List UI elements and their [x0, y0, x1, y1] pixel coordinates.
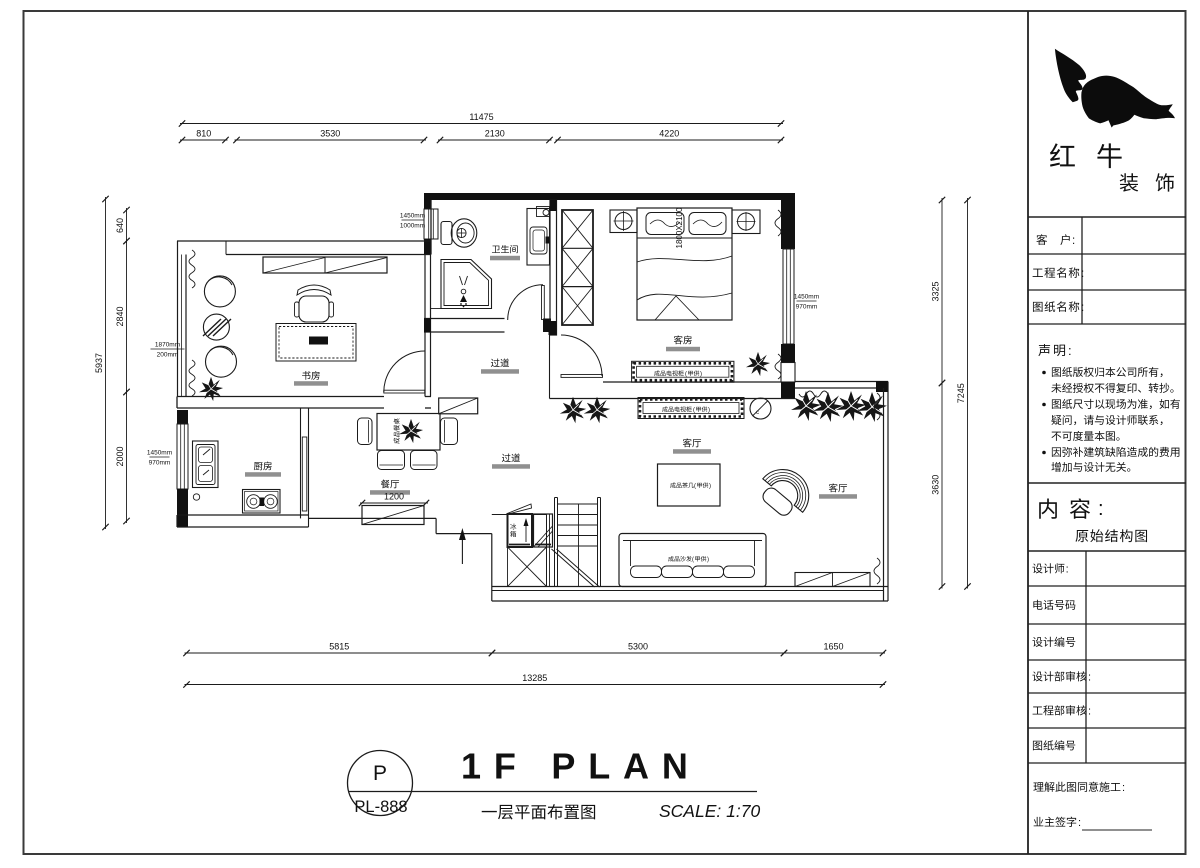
svg-text:(: (	[694, 484, 696, 490]
svg-text::: :	[1068, 343, 1072, 358]
svg-text:1F PLAN: 1F PLAN	[461, 746, 701, 787]
svg-text:640: 640	[115, 218, 125, 233]
svg-text:c: c	[756, 410, 759, 416]
svg-text:13285: 13285	[522, 673, 547, 683]
svg-text:): )	[709, 484, 711, 490]
svg-text:1450mm: 1450mm	[147, 450, 172, 457]
svg-text:3530: 3530	[320, 129, 340, 139]
svg-text:3630: 3630	[931, 475, 941, 495]
svg-text:4220: 4220	[659, 129, 679, 139]
svg-text::: :	[1088, 672, 1091, 684]
svg-text:970mm: 970mm	[796, 304, 818, 311]
svg-text::: :	[1098, 498, 1104, 520]
svg-text::: :	[1088, 706, 1091, 718]
svg-text:1000mm: 1000mm	[400, 223, 425, 230]
svg-text:PL-888: PL-888	[354, 798, 407, 816]
svg-text:2000: 2000	[115, 446, 125, 466]
svg-text:1800X2100: 1800X2100	[675, 207, 684, 248]
svg-text:11475: 11475	[469, 112, 493, 122]
svg-text::: :	[1072, 235, 1075, 247]
svg-text:(: (	[692, 557, 694, 563]
svg-text:(: (	[693, 408, 695, 414]
svg-text:): )	[707, 557, 709, 563]
svg-text:3325: 3325	[931, 281, 941, 301]
svg-text:200mm: 200mm	[157, 352, 179, 359]
svg-text:5937: 5937	[94, 353, 104, 373]
svg-text:7245: 7245	[956, 383, 966, 403]
svg-text:(: (	[685, 372, 687, 378]
svg-text::: :	[1081, 302, 1084, 314]
svg-text:970mm: 970mm	[149, 460, 171, 467]
svg-text:P: P	[373, 762, 387, 785]
svg-text:1450mm: 1450mm	[794, 294, 819, 301]
svg-text:SCALE: 1:70: SCALE: 1:70	[659, 801, 760, 821]
svg-text::: :	[1081, 268, 1084, 280]
svg-text::: :	[1078, 817, 1081, 829]
svg-text:1870mm: 1870mm	[155, 342, 180, 349]
svg-text:): )	[708, 408, 710, 414]
svg-text:2130: 2130	[485, 129, 505, 139]
svg-text:1650: 1650	[823, 642, 843, 652]
svg-text:5815: 5815	[329, 642, 349, 652]
svg-text:810: 810	[196, 129, 211, 139]
svg-text::: :	[1122, 782, 1125, 794]
svg-text:1450mm: 1450mm	[400, 213, 425, 220]
svg-text:2840: 2840	[115, 306, 125, 326]
svg-text:5300: 5300	[628, 642, 648, 652]
svg-text::: :	[1066, 564, 1069, 576]
svg-text:): )	[700, 372, 702, 378]
